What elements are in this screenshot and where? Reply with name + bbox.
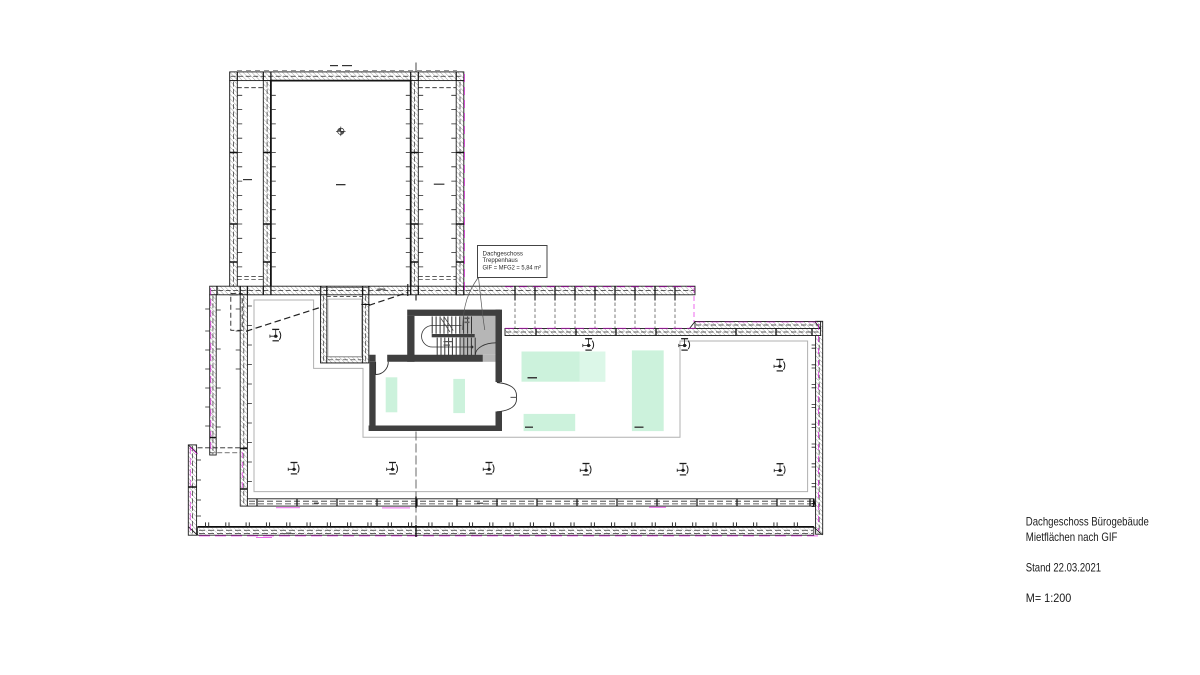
svg-text:GIF = MFG2 = 5,84 m²: GIF = MFG2 = 5,84 m² (483, 265, 542, 272)
svg-text:Treppenhaus: Treppenhaus (483, 257, 518, 264)
svg-text:Stand 22.03.2021: Stand 22.03.2021 (1026, 560, 1102, 574)
svg-text:Dachgeschoss Bürogebäude: Dachgeschoss Bürogebäude (1026, 515, 1149, 529)
svg-text:M= 1:200: M= 1:200 (1026, 591, 1072, 605)
svg-text:Mietflächen nach GIF: Mietflächen nach GIF (1026, 530, 1118, 544)
